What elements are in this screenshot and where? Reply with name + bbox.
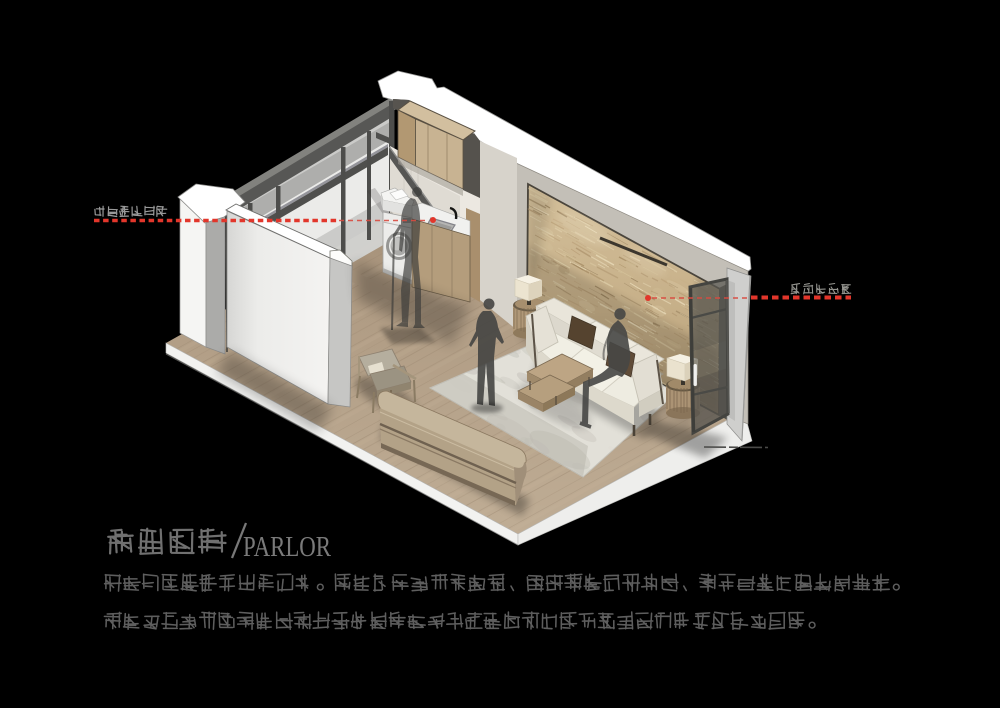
svg-text:PARLOR: PARLOR [243, 531, 332, 563]
